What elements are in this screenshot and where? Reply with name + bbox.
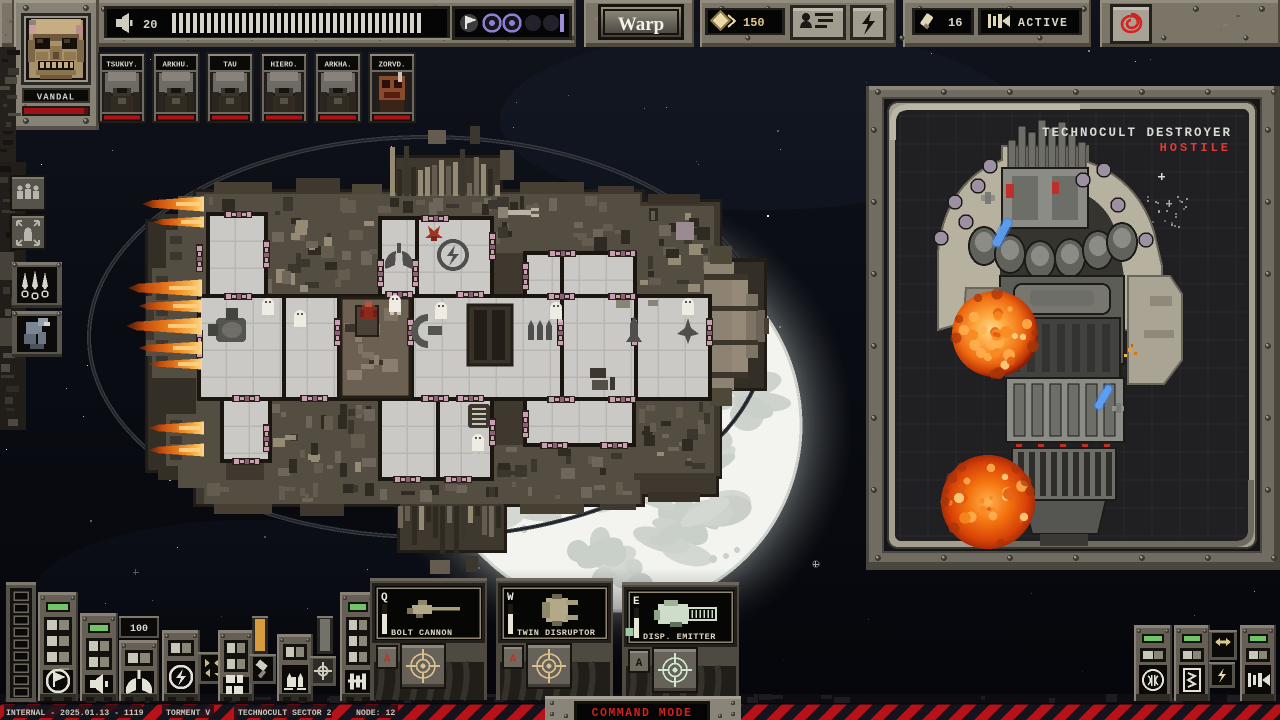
svg-text:INTERNAL - 2025.01.13 - 1119: INTERNAL - 2025.01.13 - 1119 bbox=[6, 709, 144, 718]
svg-text:W: W bbox=[507, 592, 514, 604]
svg-text:TSUKUY.: TSUKUY. bbox=[106, 62, 138, 70]
svg-text:A: A bbox=[510, 654, 517, 666]
svg-text:COMMAND MODE: COMMAND MODE bbox=[592, 707, 693, 720]
svg-text:A: A bbox=[384, 654, 391, 666]
svg-text:TWIN DISRUPTOR: TWIN DISRUPTOR bbox=[517, 628, 596, 638]
svg-text:Q: Q bbox=[381, 592, 388, 604]
svg-text:ARKHA.: ARKHA. bbox=[324, 62, 351, 70]
svg-text:ACTIVE: ACTIVE bbox=[1018, 17, 1068, 30]
svg-text:TECHNOCULT DESTROYER: TECHNOCULT DESTROYER bbox=[1042, 126, 1232, 140]
svg-text:VANDAL: VANDAL bbox=[37, 93, 75, 103]
svg-text:HOSTILE: HOSTILE bbox=[1160, 141, 1231, 155]
svg-text:Warp: Warp bbox=[618, 14, 664, 35]
svg-text:E: E bbox=[633, 596, 640, 608]
svg-text:NODE: 12: NODE: 12 bbox=[356, 709, 395, 718]
svg-text:A: A bbox=[636, 658, 643, 670]
svg-text:TORMENT V: TORMENT V bbox=[166, 709, 210, 718]
svg-text:TECHNOCULT SECTOR 2: TECHNOCULT SECTOR 2 bbox=[238, 709, 331, 718]
svg-text:TAU: TAU bbox=[223, 62, 237, 70]
svg-text:150: 150 bbox=[743, 16, 765, 30]
svg-text:DISP. EMITTER: DISP. EMITTER bbox=[643, 632, 716, 642]
svg-text:100: 100 bbox=[130, 624, 148, 635]
svg-text:20: 20 bbox=[143, 18, 157, 32]
svg-text:HIERO.: HIERO. bbox=[270, 62, 297, 70]
svg-text:ZORVD.: ZORVD. bbox=[378, 62, 405, 70]
svg-text:BOLT CANNON: BOLT CANNON bbox=[391, 628, 453, 638]
svg-text:16: 16 bbox=[948, 16, 962, 30]
svg-text:ARKHU.: ARKHU. bbox=[162, 62, 189, 70]
